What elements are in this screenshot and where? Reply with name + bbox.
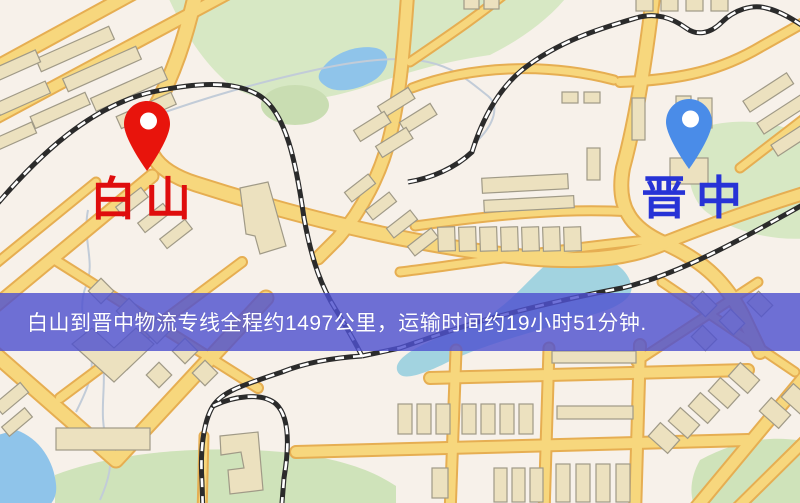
destination-pin-icon[interactable] — [666, 99, 712, 169]
origin-pin-icon[interactable] — [124, 101, 170, 171]
route-banner-text: 白山到晋中物流专线全程约1497公里，运输时间约19小时51分钟. — [0, 307, 647, 337]
origin-label: 白山 — [90, 177, 200, 223]
map-background — [0, 0, 800, 503]
destination-label: 晋中 — [641, 176, 751, 222]
origin-pin-shape — [124, 101, 170, 171]
destination-pin-hole — [682, 111, 699, 128]
route-banner: 白山到晋中物流专线全程约1497公里，运输时间约19小时51分钟. — [0, 293, 800, 351]
destination-pin-shape — [666, 99, 712, 169]
origin-pin-hole — [140, 113, 157, 130]
map-canvas: 白山 晋中 白山到晋中物流专线全程约1497公里，运输时间约19小时51分钟. — [0, 0, 800, 503]
